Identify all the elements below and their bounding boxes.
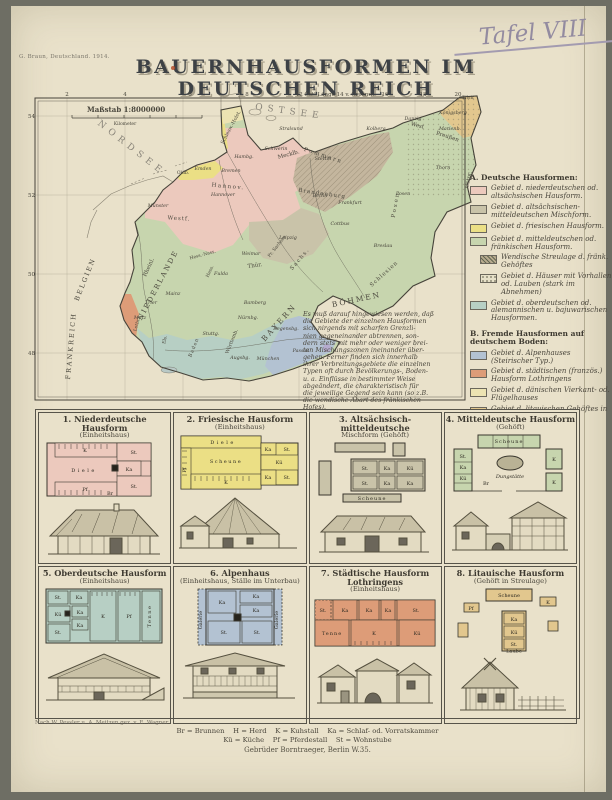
- color-swatch: [470, 237, 487, 246]
- ink-stain: [171, 66, 175, 70]
- house-engraving: [177, 492, 302, 556]
- svg-text:Galerie: Galerie: [198, 610, 204, 629]
- floor-plan: St. Ka Kü St. Ka Ka K Pf Tenne: [42, 587, 167, 645]
- panel-subtitle: (Gehöft in Streulage): [474, 578, 547, 585]
- scale-label: Maßstab 1:8000000: [87, 105, 165, 114]
- color-swatch: [470, 301, 487, 310]
- legend-item: Wendische Streulage d. fränk. Gehöftes: [480, 254, 612, 270]
- svg-text:K: K: [372, 631, 376, 637]
- color-swatch: [470, 351, 487, 360]
- svg-text:Hannover: Hannover: [210, 192, 236, 198]
- svg-text:Fulda: Fulda: [213, 271, 228, 277]
- legend-item: Gebiet d. Häuser mit Vorhallen od. Laube…: [480, 273, 612, 296]
- svg-text:FRANKREICH: FRANKREICH: [64, 312, 78, 380]
- svg-text:Ka: Ka: [383, 481, 390, 487]
- publisher: Gebrüder Borntraeger, Berlin W.35.: [35, 746, 580, 754]
- svg-text:2: 2: [65, 92, 69, 98]
- svg-text:St.: St.: [511, 642, 518, 648]
- svg-text:Thorn: Thorn: [436, 165, 451, 171]
- svg-text:Ka: Ka: [77, 623, 84, 629]
- panel-niederdeutsch: 1. Niederdeutsche Hausform (Einheitshaus…: [38, 412, 171, 564]
- svg-text:Diele: Diele: [211, 440, 237, 446]
- svg-text:Bremen: Bremen: [220, 168, 240, 174]
- legend-item: Gebiet d. städtischen (französ.) Hausfor…: [470, 368, 612, 384]
- svg-text:K: K: [101, 614, 105, 620]
- svg-text:St.: St.: [319, 608, 326, 614]
- svg-text:Br: Br: [107, 491, 114, 497]
- svg-text:Ka: Ka: [406, 481, 413, 487]
- svg-text:K: K: [552, 457, 556, 463]
- map-legend: A. Deutsche Hausformen: Gebiet d. nieder…: [470, 174, 612, 428]
- svg-text:Oldb.: Oldb.: [177, 170, 190, 176]
- svg-text:Scheune: Scheune: [210, 459, 242, 465]
- svg-text:Leipzig: Leipzig: [278, 235, 297, 241]
- svg-text:Kü: Kü: [406, 466, 414, 472]
- svg-text:Ka: Ka: [384, 608, 391, 614]
- map-note: Es muß darauf hingewiesen werden, daß di…: [303, 311, 471, 411]
- color-swatch: [470, 388, 487, 397]
- svg-text:Bamberg: Bamberg: [243, 300, 266, 306]
- house-engraving: [42, 646, 167, 712]
- svg-text:St.: St.: [55, 630, 62, 636]
- floor-plan: Scheune K Pf Ka Kü St. Laube: [450, 587, 570, 653]
- svg-text:Stettin: Stettin: [315, 156, 332, 162]
- legend-b: B. Fremde Hausformen auf deutschem Boden…: [470, 330, 612, 421]
- panel-subtitle: (Einheitshaus): [80, 578, 130, 585]
- svg-text:Stralsund: Stralsund: [279, 126, 303, 132]
- color-swatch: [470, 205, 487, 214]
- svg-text:Frankfurt: Frankfurt: [337, 200, 362, 206]
- panel-mischform: 3. Altsächsisch-mitteldeutsche Mischform…: [309, 412, 442, 564]
- panel-alpenhaus: 6. Alpenhaus (Einheitshaus, Ställe im Un…: [173, 566, 306, 724]
- plate: G. Braun, Deutschland. 1914. Tafel VIII …: [11, 6, 606, 792]
- svg-text:St.: St.: [254, 630, 261, 636]
- svg-text:48: 48: [28, 351, 35, 357]
- abbreviation-key-line1: Br = Brunnen H = Herd K = Kuhstall Ka = …: [35, 727, 580, 735]
- handwritten-plate-number: Tafel VIII: [452, 13, 612, 56]
- panel-subtitle: (Einheitshaus): [80, 432, 130, 439]
- color-swatch-hatched: [480, 255, 497, 264]
- svg-text:18: 18: [420, 92, 427, 98]
- svg-text:K: K: [547, 600, 551, 606]
- scale-bar: [72, 115, 202, 118]
- abbreviation-key-line2: Kü = Küche Pf = Pferdestall St = Wohnstu…: [35, 736, 580, 744]
- svg-text:Mainz: Mainz: [165, 291, 181, 297]
- house-form-panels: 1. Niederdeutsche Hausform (Einheitshaus…: [35, 409, 580, 719]
- svg-text:Diele: Diele: [71, 468, 97, 474]
- panel-title: 7. Städtische Hausform Lothringens: [310, 569, 441, 586]
- svg-text:Nürnbg.: Nürnbg.: [237, 315, 259, 321]
- svg-text:Breslau: Breslau: [373, 243, 393, 249]
- panel-subtitle: (Gehöft): [496, 424, 524, 431]
- svg-text:St.: St.: [361, 481, 368, 487]
- legend-b-title: B. Fremde Hausformen auf deutschem Boden…: [470, 330, 612, 347]
- legend-item: Gebiet d. altsächsischen-mitteldeutschen…: [470, 204, 612, 220]
- floor-plan: Diele Scheune Pf K Ka St. Kü Ka St.: [177, 433, 302, 491]
- svg-text:8: 8: [245, 92, 249, 98]
- svg-text:12 Östl.Länge 14 v. Greenw.: 12 Östl.Länge 14 v. Greenw.: [296, 91, 375, 98]
- credit-line: Nach W. Pessler u. A. Meitzen gez. v. E.…: [35, 720, 168, 726]
- svg-text:St.: St.: [412, 608, 419, 614]
- svg-text:Ka: Ka: [253, 594, 260, 600]
- floor-plan: Galerie Ka Ka Ka St. St. Galerie: [182, 587, 297, 647]
- svg-text:Danzig: Danzig: [404, 116, 422, 122]
- svg-text:K: K: [225, 480, 229, 486]
- svg-text:6: 6: [188, 92, 192, 98]
- sea-label-north: NORDSEE: [95, 119, 167, 178]
- svg-text:Tenne: Tenne: [321, 631, 341, 637]
- svg-text:St.: St.: [221, 630, 228, 636]
- color-swatch: [470, 186, 487, 195]
- svg-text:Ka: Ka: [126, 467, 133, 473]
- svg-text:Ka: Ka: [253, 608, 260, 614]
- svg-text:Königsberg: Königsberg: [438, 110, 467, 116]
- svg-text:K: K: [552, 480, 556, 486]
- house-engraving: [42, 500, 167, 563]
- lon-labels: 2 4 6 8 12 Östl.Länge 14 v. Greenw. 16 1…: [65, 91, 462, 98]
- svg-text:Kü: Kü: [511, 630, 519, 636]
- svg-text:Laube: Laube: [507, 648, 523, 653]
- svg-text:St.: St.: [284, 475, 291, 481]
- svg-text:Posen: Posen: [395, 191, 410, 197]
- svg-text:Ka: Ka: [511, 617, 518, 623]
- house-engraving: [313, 504, 438, 563]
- sea-label-baltic: OSTSEE: [254, 102, 324, 121]
- floor-plan: St. Ka Kü St. Ka Ka Scheune: [313, 441, 438, 502]
- svg-text:Ka: Ka: [460, 465, 467, 471]
- color-swatch-dotted: [480, 274, 497, 283]
- svg-text:Scheune: Scheune: [357, 496, 386, 502]
- svg-text:16: 16: [382, 92, 389, 98]
- color-swatch: [470, 369, 487, 378]
- panel-subtitle: (Einheitshaus, Ställe im Unterbau): [180, 578, 300, 585]
- svg-text:Ka: Ka: [76, 595, 83, 601]
- panel-oberdeutsch: 5. Oberdeutsche Hausform (Einheitshaus): [38, 566, 171, 724]
- svg-text:Ka: Ka: [219, 600, 226, 606]
- house-engraving: [177, 648, 302, 710]
- panel-title: 1. Niederdeutsche Hausform: [39, 415, 170, 432]
- svg-text:Kü: Kü: [459, 476, 467, 482]
- floor-plan: St. Ka Ka Ka St. Tenne K Kü: [313, 595, 438, 650]
- house-engraving: [313, 651, 438, 717]
- panel-title: 3. Altsächsisch-mitteldeutsche: [310, 415, 441, 432]
- legend-item: Gebiet d. Alpenhauses (Steirischer Typ.): [470, 350, 612, 366]
- svg-text:Tilsit: Tilsit: [462, 95, 474, 101]
- svg-text:Ka: Ka: [265, 475, 272, 481]
- floor-plan: Scheune St. Ka Kü K K Dungstätte Br: [448, 433, 573, 495]
- house-engraving: [448, 496, 573, 556]
- legend-item: Gebiet d. friesischen Hausform.: [470, 223, 612, 233]
- svg-text:St.: St.: [131, 484, 138, 490]
- svg-text:Münster: Münster: [147, 203, 169, 209]
- house-engraving: [448, 654, 573, 716]
- lat-labels: 54 52 50 48: [28, 114, 35, 357]
- svg-text:Br: Br: [483, 481, 490, 487]
- svg-text:Ka: Ka: [365, 608, 372, 614]
- svg-text:Schwerin: Schwerin: [265, 146, 288, 152]
- svg-text:Berlin: Berlin: [312, 193, 328, 199]
- svg-text:St.: St.: [55, 595, 62, 601]
- svg-text:Marienb.: Marienb.: [438, 126, 462, 132]
- svg-text:München: München: [256, 356, 280, 362]
- svg-text:50: 50: [28, 272, 35, 278]
- panel-mitteldeutsch: 4. Mitteldeutsche Hausform (Gehöft) Sche…: [444, 412, 577, 564]
- svg-text:St.: St.: [284, 447, 291, 453]
- svg-text:St.: St.: [459, 454, 466, 460]
- svg-text:Ka: Ka: [265, 447, 272, 453]
- svg-text:Kolberg: Kolberg: [365, 126, 385, 132]
- svg-text:Westf.: Westf.: [167, 215, 190, 222]
- svg-text:52: 52: [28, 193, 35, 199]
- svg-text:Hambg.: Hambg.: [233, 154, 254, 160]
- svg-text:54: 54: [28, 114, 35, 120]
- legend-item: Gebiet d. mitteldeutschen od. fränkische…: [470, 236, 612, 252]
- svg-text:Dungstätte: Dungstätte: [495, 474, 524, 480]
- scale-km-label: Kilometer: [114, 121, 137, 127]
- svg-text:St.: St.: [361, 466, 368, 472]
- svg-text:Ka: Ka: [77, 610, 84, 616]
- svg-text:BELGIEN: BELGIEN: [73, 256, 98, 302]
- floor-plan: K Diele Pf St. Ka St. Br: [42, 441, 167, 498]
- svg-text:20: 20: [455, 92, 462, 98]
- svg-text:4: 4: [123, 92, 127, 98]
- svg-text:Ka: Ka: [341, 608, 348, 614]
- svg-text:Scheune: Scheune: [494, 439, 523, 445]
- svg-text:Emden: Emden: [193, 166, 211, 172]
- legend-a: A. Deutsche Hausformen: Gebiet d. nieder…: [470, 174, 612, 323]
- svg-text:Trier: Trier: [145, 300, 158, 306]
- panel-lothringen: 7. Städtische Hausform Lothringens (Einh…: [309, 566, 442, 724]
- legend-item: Gebiet d. oberdeutschen od. alemannische…: [470, 300, 612, 323]
- svg-text:Ka: Ka: [383, 466, 390, 472]
- svg-text:Kü: Kü: [55, 612, 63, 618]
- svg-text:Cottbus: Cottbus: [330, 221, 350, 227]
- legend-a-title: A. Deutsche Hausformen:: [470, 174, 612, 182]
- svg-text:Scheune: Scheune: [498, 593, 520, 599]
- panel-subtitle: (Einheitshaus): [350, 586, 400, 593]
- panel-subtitle: (Einheitshaus): [215, 424, 265, 431]
- svg-text:Kü: Kü: [413, 631, 421, 637]
- legend-item: Gebiet d. dänischen Vierkant- od. Flügel…: [470, 387, 612, 403]
- svg-text:Galerie: Galerie: [274, 610, 280, 629]
- svg-text:Augsbg.: Augsbg.: [229, 355, 250, 361]
- svg-text:Kü: Kü: [276, 460, 284, 466]
- svg-text:Regensbg.: Regensbg.: [272, 326, 299, 332]
- panel-litauisch: 8. Litauische Hausform (Gehöft in Streul…: [444, 566, 577, 724]
- svg-text:Stuttg.: Stuttg.: [203, 331, 220, 337]
- svg-text:Tenne: Tenne: [147, 604, 153, 627]
- svg-text:Weimar: Weimar: [242, 251, 261, 257]
- legend-item: Gebiet d. niederdeutschen od. altsächsis…: [470, 185, 612, 201]
- svg-text:St.: St.: [131, 450, 138, 456]
- panel-friesisch: 2. Friesische Hausform (Einheitshaus) Di…: [173, 412, 306, 564]
- color-swatch: [470, 224, 487, 233]
- svg-text:Metz: Metz: [133, 315, 147, 321]
- svg-text:K: K: [83, 448, 87, 454]
- panel-subtitle: Mischform (Gehöft): [341, 432, 409, 439]
